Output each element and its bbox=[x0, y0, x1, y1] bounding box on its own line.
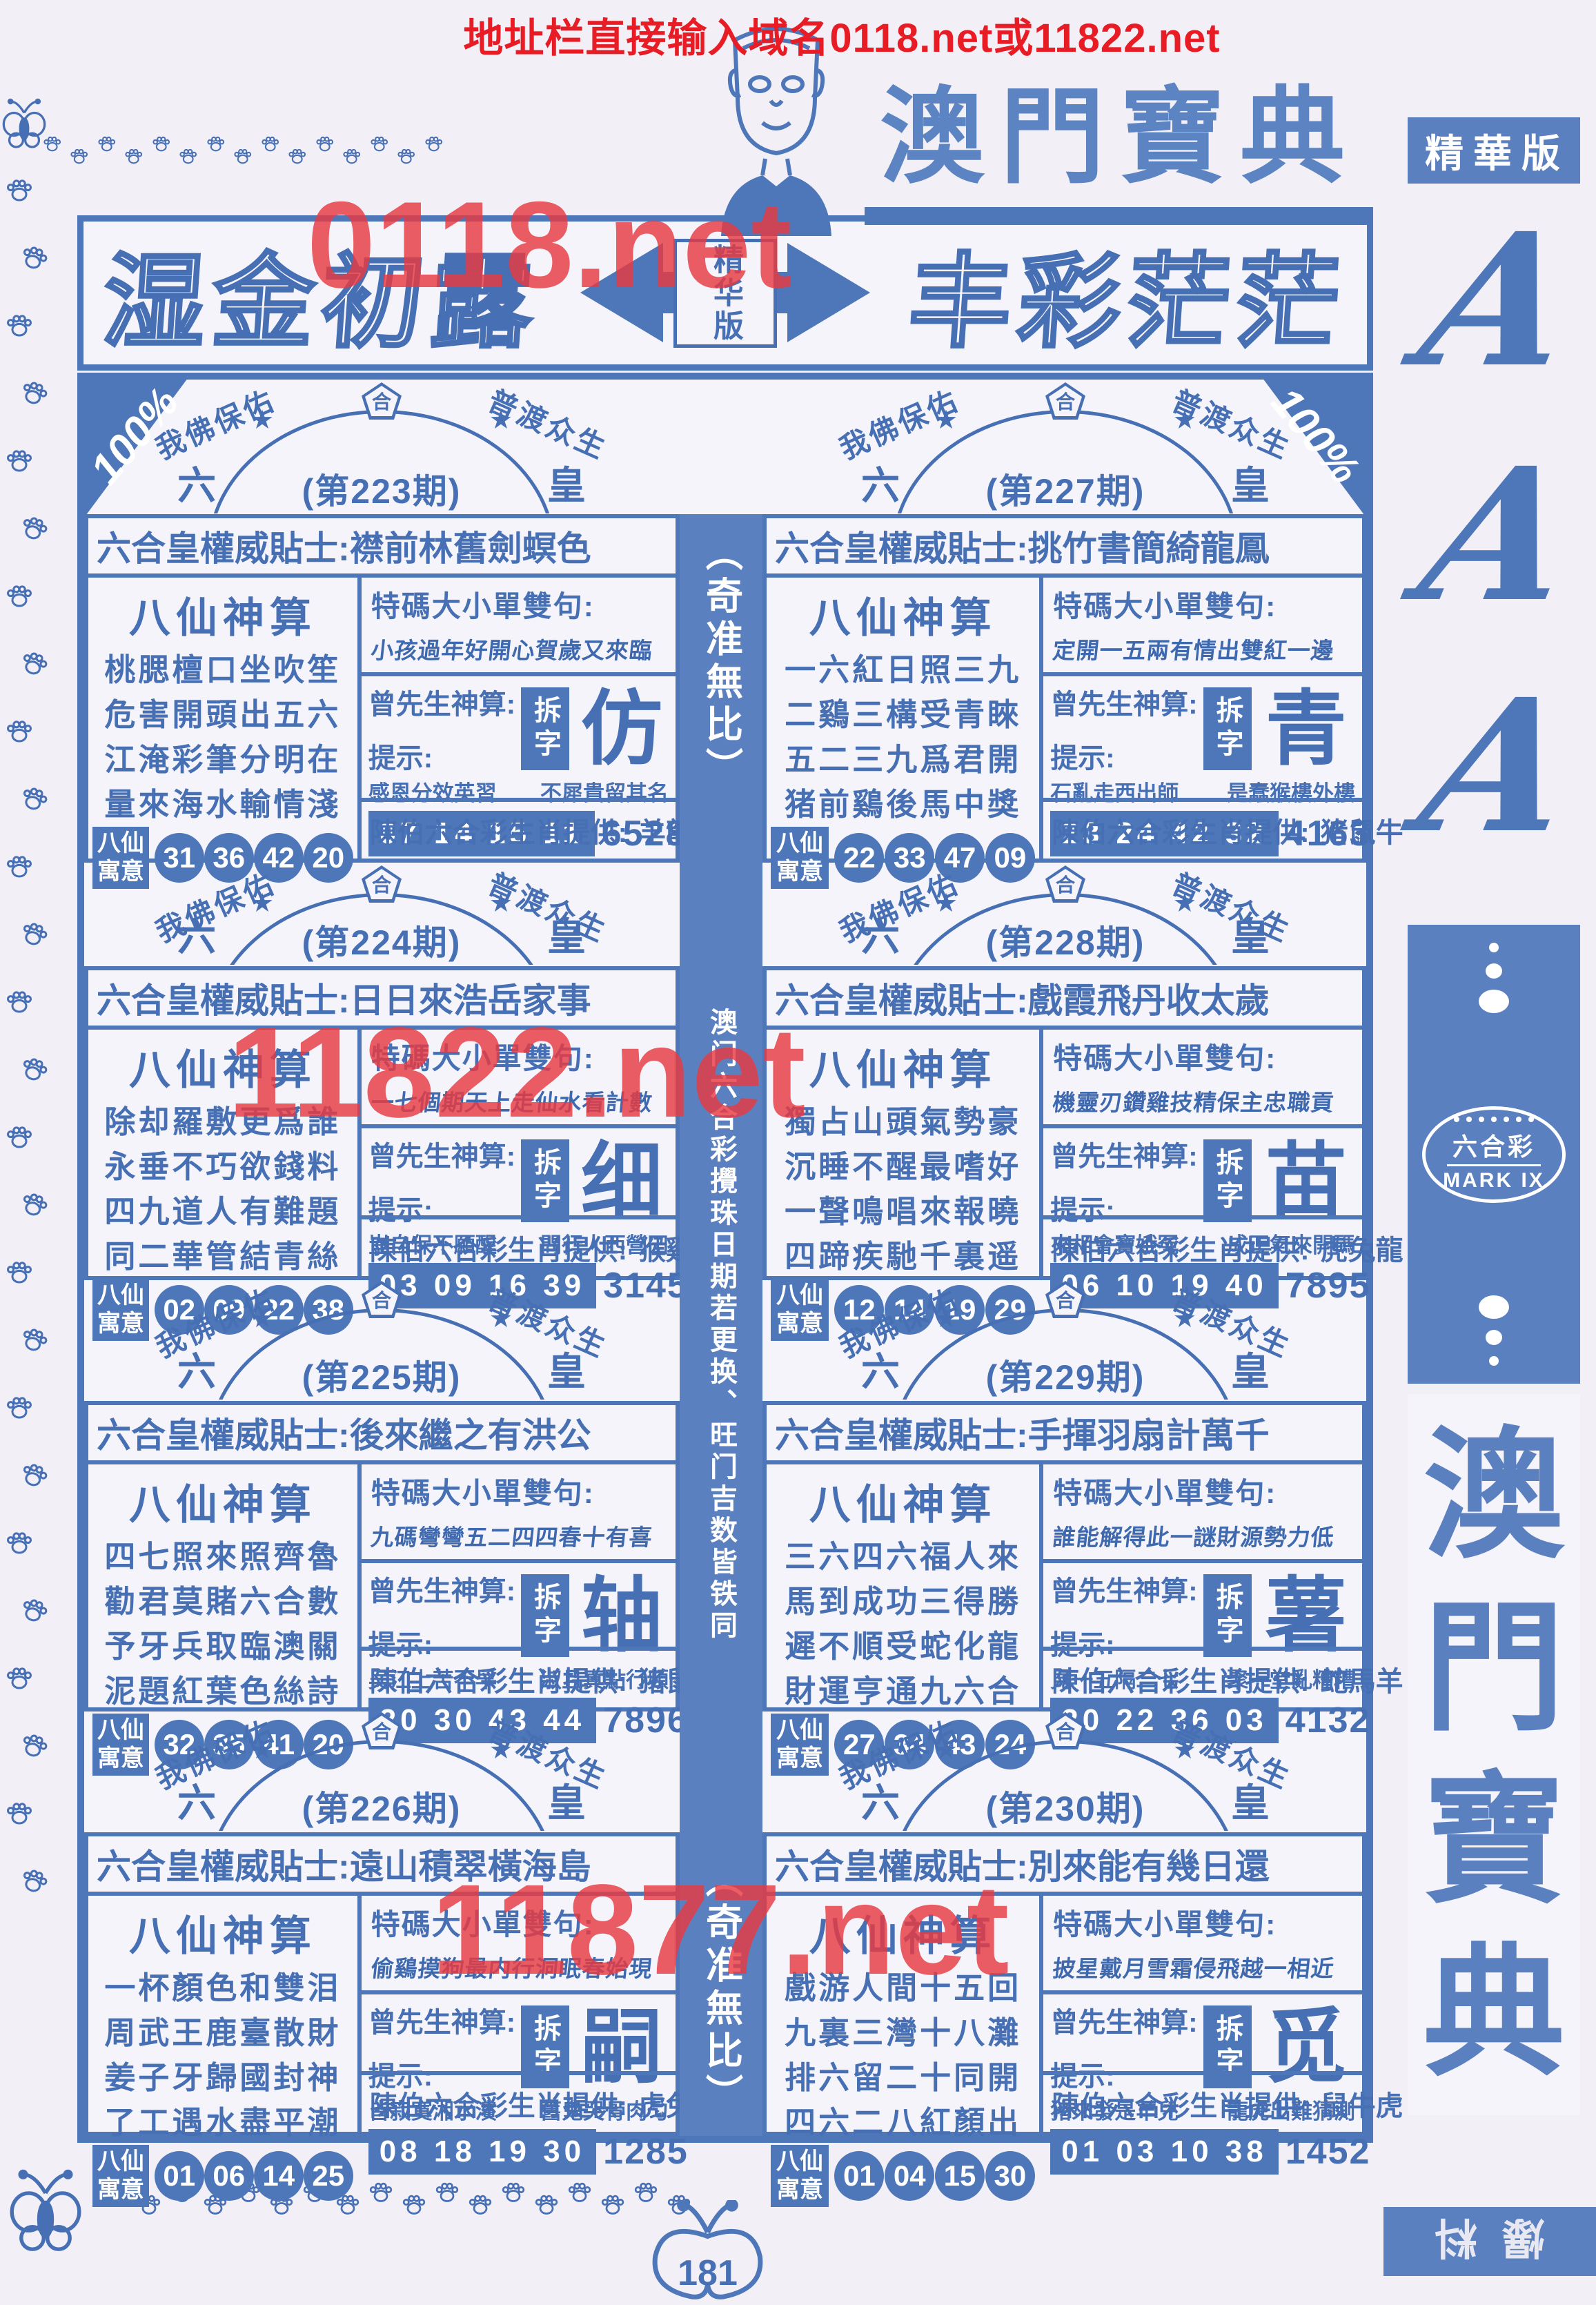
tip-text: 襟前林舊劍螟色 bbox=[350, 521, 591, 571]
poem-line: 一六紅日照三九 bbox=[767, 645, 1039, 689]
address-bar-notice: 地址栏直接输入域名0118.net或11822.net bbox=[442, 6, 1242, 63]
paw-icon bbox=[17, 239, 52, 275]
poem-line: 四蹄疾馳千裏遥 bbox=[767, 1231, 1039, 1276]
panel-body: 八仙神算 除却羅敷更爲誰 永垂不巧欲錢料 四九道人有難題 同二華管結青絲 八仙寓… bbox=[88, 1030, 676, 1276]
master-label: 曾先生神算: bbox=[1050, 1134, 1197, 1174]
authority-tip-row: 六合皇權威貼士: 戲霞飛丹收太歲 bbox=[767, 970, 1362, 1030]
tip-text: 別來能有幾日還 bbox=[1028, 1839, 1270, 1889]
paw-icon bbox=[368, 2179, 393, 2204]
star-icon: ★ bbox=[489, 404, 513, 435]
hint-label: 提示: bbox=[368, 736, 515, 776]
master-label: 曾先生神算: bbox=[368, 2000, 515, 2040]
panel-body: 八仙神算 四七照來照齊魯 勸君莫賭六合數 予牙兵取臨澳關 泥題紅葉色絲詩 八仙寓… bbox=[88, 1464, 676, 1707]
paw-icon bbox=[17, 645, 52, 680]
master-label: 曾先生神算: bbox=[1050, 682, 1197, 722]
paw-icon bbox=[70, 144, 88, 168]
poem-line: 九裏三灣十八灘 bbox=[767, 2008, 1039, 2052]
poem-line: 一杯顏色和雙泪 bbox=[88, 1963, 357, 2008]
authority-tip-row: 六合皇權威貼士: 挑竹書簡綺龍鳳 bbox=[767, 518, 1362, 578]
paw-icon bbox=[6, 1664, 33, 1691]
paw-icon bbox=[17, 1051, 52, 1086]
poem-line: 沉睡不醒最嗜好 bbox=[767, 1141, 1039, 1186]
poem-line: 江淹彩筆分明在 bbox=[88, 734, 357, 779]
number-ball: 14 bbox=[254, 2151, 304, 2201]
poem-line: 姜子牙歸國封神 bbox=[88, 2052, 357, 2097]
issue-number: (第225期) bbox=[147, 1350, 616, 1400]
paw-icon bbox=[6, 1123, 33, 1150]
crown-character: 合 bbox=[362, 1712, 402, 1749]
master-row: 曾先生神算: 提示: 拆字 青 bbox=[1050, 682, 1355, 776]
zodiac-label: 陳伯六合彩生肖提供: bbox=[1052, 2083, 1309, 2123]
issue-arch-header: 我佛保佑 普渡众生 ★ ★ 合 六 皇 (第226期) bbox=[147, 1711, 616, 1831]
paw-icon bbox=[315, 131, 334, 156]
banner-center-arrows: 精华版 bbox=[580, 236, 870, 350]
poem-line: 三六四六福人來 bbox=[767, 1531, 1039, 1576]
paw-icon bbox=[6, 311, 33, 339]
panel-body: 八仙神算 三六四六福人來 馬到成功三得勝 遲不順受蛇化龍 財運亨通九六合 八仙寓… bbox=[767, 1464, 1362, 1707]
oracle-poem: 三六四六福人來 馬到成功三得勝 遲不順受蛇化龍 財運亨通九六合 bbox=[767, 1531, 1039, 1711]
star-icon: ★ bbox=[250, 404, 274, 435]
tip-label: 六合皇權威貼士: bbox=[97, 1839, 350, 1889]
special-code-label: 特碼大小單雙句: bbox=[371, 1901, 669, 1943]
poem-line: 了工遇水盡平潮 bbox=[88, 2097, 357, 2142]
split-word-character: 青 bbox=[1257, 688, 1355, 769]
oracle-column: 八仙神算 三六四六福人來 馬到成功三得勝 遲不順受蛇化龍 財運亨通九六合 八仙寓… bbox=[767, 1464, 1043, 1707]
center-slogan-strip: （奇准無比） 澳门六合彩攪珠日期若更换、旺门吉数皆铁同 （奇准無比） bbox=[680, 514, 762, 2136]
page-number-butterfly: 181 bbox=[647, 2200, 768, 2304]
book-title-char: 典 bbox=[1423, 1943, 1565, 2084]
poem-line: 一聲鳴唱來報曉 bbox=[767, 1186, 1039, 1231]
immortals-meaning-label: 八仙寓意 bbox=[771, 827, 829, 889]
paw-icon bbox=[288, 144, 306, 168]
crown-emblem-icon: 合 bbox=[1045, 1712, 1085, 1749]
oracle-title: 八仙神算 bbox=[767, 1903, 1039, 1963]
paw-icon bbox=[206, 131, 225, 156]
sidebar-footer-band: 爆料 bbox=[1383, 2207, 1596, 2276]
tip-text: 後來繼之有洪公 bbox=[350, 1408, 591, 1458]
paw-icon bbox=[370, 131, 388, 156]
star-icon: ★ bbox=[1173, 404, 1196, 435]
immortals-meaning-row: 八仙寓意 01 06 14 25 bbox=[88, 2142, 357, 2211]
tip-label: 六合皇權威貼士: bbox=[775, 521, 1028, 571]
oracle-title: 八仙神算 bbox=[88, 1903, 357, 1963]
issue-panel-224: 六合皇權威貼士: 日日來浩岳家事 八仙神算 除却羅敷更爲誰 永垂不巧欲錢料 四九… bbox=[84, 966, 680, 1280]
oracle-poem: 一杯顏色和雙泪 周武王鹿臺散財 姜子牙歸國封神 了工遇水盡平潮 bbox=[88, 1963, 357, 2142]
special-code-box: 特碼大小單雙句: 九碼彎彎五二四四春十有喜 bbox=[362, 1464, 676, 1563]
paw-border-top bbox=[43, 131, 443, 156]
zodiac-row: 陳伯六合彩生肖提供: 猪鼠牛 bbox=[362, 1647, 676, 1707]
tip-label: 六合皇權威貼士: bbox=[775, 1408, 1028, 1458]
dots-ellipsis-icon bbox=[1479, 943, 1509, 1013]
paw-icon bbox=[17, 1322, 52, 1357]
crown-character: 合 bbox=[362, 382, 402, 420]
lucky-number-balls: 01 06 14 25 bbox=[155, 2151, 353, 2201]
master-box: 曾先生神算: 提示: 拆字 觅 猪來發是羊兒 龍虎出難猜測 01 03 10 3… bbox=[1043, 1994, 1362, 2071]
paw-icon bbox=[435, 2179, 460, 2204]
special-code-box: 特碼大小單雙句: 誰能解得此一謎財源勢力低 bbox=[1043, 1464, 1362, 1563]
master-box: 曾先生神算: 提示: 拆字 薯 見一五隔二七 聚一堂亂糟糟 20 22 36 0… bbox=[1043, 1563, 1362, 1647]
master-label: 曾先生神算: bbox=[1050, 1569, 1197, 1609]
immortals-meaning-label: 八仙寓意 bbox=[92, 1714, 149, 1776]
macau-treasure-book-page: 地址栏直接输入域名0118.net或11822.net 澳門寶典 bbox=[0, 0, 1596, 2305]
strip-top-text: （奇准無比） bbox=[694, 533, 749, 790]
poem-line: 二鷄三構受青睞 bbox=[767, 689, 1039, 734]
butterfly-icon bbox=[4, 2167, 87, 2257]
oracle-title: 八仙神算 bbox=[767, 1471, 1039, 1531]
star-icon: ★ bbox=[489, 1734, 513, 1765]
zodiac-label: 陳伯六合彩生肖提供: bbox=[370, 1228, 627, 1268]
master-box: 曾先生神算: 提示: 拆字 嗣 皆寂寞湘水濱 舊鬼哭骨肉匀 08 18 19 3… bbox=[362, 1994, 676, 2071]
poem-line: 周武王鹿臺散財 bbox=[88, 2008, 357, 2052]
paw-icon bbox=[6, 447, 33, 474]
authority-tip-row: 六合皇權威貼士: 手揮羽扇計萬千 bbox=[767, 1405, 1362, 1464]
oracle-poem: 戲游人間十五回 九裏三灣十八灘 排六留二十同開 四六二八紅顏出 bbox=[767, 1963, 1039, 2142]
right-arrow-icon bbox=[787, 243, 870, 342]
authority-tip-row: 六合皇權威貼士: 後來繼之有洪公 bbox=[88, 1405, 676, 1464]
issue-arch-header: 我佛保佑 普渡众生 ★ ★ 合 六 皇 (第229期) bbox=[831, 1279, 1300, 1400]
crown-emblem-icon: 合 bbox=[1045, 1281, 1085, 1318]
star-icon: ★ bbox=[489, 887, 513, 919]
logo-chinese-text: 六合彩 bbox=[1447, 1127, 1541, 1166]
tip-label: 六合皇權威貼士: bbox=[97, 973, 350, 1023]
master-box: 曾先生神算: 提示: 拆字 仿 感恩分效英習 不犀貴留其名 07 14 15 1… bbox=[362, 676, 676, 798]
paw-icon bbox=[501, 2179, 526, 2204]
paw-icon bbox=[124, 144, 143, 168]
star-icon: ★ bbox=[1173, 1734, 1196, 1765]
oracle-title: 八仙神算 bbox=[88, 1037, 357, 1097]
numbers-row: 08 18 19 30 1285 bbox=[368, 2129, 669, 2175]
banner-left-slogan: 湿金初露 bbox=[99, 219, 545, 367]
oracle-column: 八仙神算 一杯顏色和雙泪 周武王鹿臺散財 姜子牙歸國封神 了工遇水盡平潮 八仙寓… bbox=[88, 1896, 362, 2132]
lucky-number-balls: 01 04 15 30 bbox=[834, 2151, 1035, 2201]
special-code-box: 特碼大小單雙句: 小孩過年好開心賀歲又來臨 bbox=[362, 578, 676, 676]
special-code-box: 特碼大小單雙句: 定開一五兩有情出雙紅一邊 bbox=[1043, 578, 1362, 676]
poem-line: 四六二八紅顏出 bbox=[767, 2097, 1039, 2142]
zodiac-row: 陳伯六合彩生肖提供: 鼠牛虎 bbox=[1043, 2071, 1362, 2132]
crown-character: 合 bbox=[1045, 382, 1085, 420]
paw-icon bbox=[17, 781, 52, 816]
special-code-label: 特碼大小單雙句: bbox=[371, 1470, 669, 1512]
issue-number: (第227期) bbox=[831, 464, 1300, 513]
crown-character: 合 bbox=[1045, 1281, 1085, 1318]
poem-line: 遲不順受蛇化龍 bbox=[767, 1621, 1039, 1666]
master-label: 曾先生神算: bbox=[1050, 2000, 1197, 2040]
tip-text: 挑竹書簡綺龍鳳 bbox=[1028, 521, 1270, 571]
authority-tip-row: 六合皇權威貼士: 遠山積翠橫海島 bbox=[88, 1836, 676, 1896]
paw-icon bbox=[17, 1592, 52, 1627]
master-labels: 曾先生神算: 提示: bbox=[368, 682, 515, 776]
butterfly-icon bbox=[1, 97, 47, 152]
prediction-column: 特碼大小單雙句: 機靈刃鑽雞技精保主忠職貢 曾先生神算: 提示: 拆字 苗 來相… bbox=[1043, 1030, 1362, 1276]
special-code-phrase: 九碼彎彎五二四四春十有喜 bbox=[369, 1519, 670, 1552]
zodiac-row: 陳伯六合彩生肖提供: 虎兔龍 bbox=[1043, 1215, 1362, 1276]
tip-label: 六合皇權威貼士: bbox=[775, 1839, 1028, 1889]
dots-ellipsis-icon bbox=[1479, 1295, 1509, 1366]
oracle-column: 八仙神算 除却羅敷更爲誰 永垂不巧欲錢料 四九道人有難題 同二華管結青絲 八仙寓… bbox=[88, 1030, 362, 1276]
immortals-meaning-label: 八仙寓意 bbox=[771, 2145, 829, 2207]
issue-panel-230: 六合皇權威貼士: 別來能有幾日還 八仙神算 戲游人間十五回 九裏三灣十八灘 排六… bbox=[762, 1832, 1366, 2136]
numbers-row: 01 03 10 38 1452 bbox=[1050, 2129, 1355, 2175]
poem-line: 獨占山頭氣勢豪 bbox=[767, 1097, 1039, 1141]
sidebar-footer-text: 爆料 bbox=[1410, 2210, 1570, 2273]
paw-icon bbox=[468, 2192, 493, 2217]
logo-english-text: MARK IX bbox=[1443, 1169, 1545, 1193]
crown-emblem-icon: 合 bbox=[362, 1712, 402, 1749]
sidebar-letter-a: A bbox=[1375, 200, 1596, 428]
paw-icon bbox=[17, 510, 52, 545]
crown-emblem-icon: 合 bbox=[362, 382, 402, 420]
split-word-character: 薯 bbox=[1257, 1575, 1355, 1656]
paw-icon bbox=[17, 1727, 52, 1763]
oracle-poem: 四七照來照齊魯 勸君莫賭六合數 予牙兵取臨澳關 泥題紅葉色絲詩 bbox=[88, 1531, 357, 1711]
master-labels: 曾先生神算: 提示: bbox=[368, 1134, 515, 1228]
issue-panel-227: 六合皇權威貼士: 挑竹書簡綺龍鳳 八仙神算 一六紅日照三九 二鷄三構受青睞 五二… bbox=[762, 514, 1366, 863]
number-ball: 25 bbox=[304, 2151, 353, 2201]
special-code-box: 特碼大小單雙句: 披星戴月雪霜侵飛越一相近 bbox=[1043, 1896, 1362, 1994]
split-word-label: 拆字 bbox=[1203, 1139, 1252, 1222]
oracle-column: 八仙神算 四七照來照齊魯 勸君莫賭六合數 予牙兵取臨澳關 泥題紅葉色絲詩 八仙寓… bbox=[88, 1464, 362, 1707]
star-icon: ★ bbox=[1173, 887, 1196, 919]
zodiac-animals: 虎兔龍 bbox=[1321, 1228, 1403, 1268]
crown-character: 合 bbox=[362, 1281, 402, 1318]
tip-label: 六合皇權威貼士: bbox=[97, 1408, 350, 1458]
immortals-meaning-label: 八仙寓意 bbox=[92, 2145, 149, 2207]
issue-panel-226: 六合皇權威貼士: 遠山積翠橫海島 八仙神算 一杯顏色和雙泪 周武王鹿臺散財 姜子… bbox=[84, 1832, 680, 2136]
book-title-char: 澳 bbox=[1423, 1425, 1565, 1567]
star-icon: ★ bbox=[250, 887, 274, 919]
panel-body: 八仙神算 獨占山頭氣勢豪 沉睡不醒最嗜好 一聲鳴唱來報曉 四蹄疾馳千裏遥 八仙寓… bbox=[767, 1030, 1362, 1276]
zodiac-row: 陳伯六合彩生肖提供: 羊龍蛇 bbox=[362, 798, 676, 859]
number-ball: 30 bbox=[985, 2151, 1035, 2201]
tip-label: 六合皇權威貼士: bbox=[97, 521, 350, 571]
book-title-char: 門 bbox=[1423, 1598, 1565, 1739]
number-ball: 06 bbox=[204, 2151, 254, 2201]
number-ball: 01 bbox=[834, 2151, 884, 2201]
poem-line: 同二華管結青絲 bbox=[88, 1231, 357, 1276]
issue-arch-header: 我佛保佑 普渡众生 ★ ★ 合 六 皇 (第224期) bbox=[147, 864, 616, 965]
star-icon: ★ bbox=[1173, 1303, 1196, 1334]
poem-line: 除却羅敷更爲誰 bbox=[88, 1097, 357, 1141]
paw-icon bbox=[6, 1529, 33, 1556]
title-underline-bar bbox=[865, 207, 1373, 225]
panel-body: 八仙神算 桃腮檀口坐吹笙 危害開頭出五六 江淹彩筆分明在 量來海水輸情淺 八仙寓… bbox=[88, 578, 676, 859]
issue-arch-header: 我佛保佑 普渡众生 ★ ★ 合 六 皇 (第223期) bbox=[147, 381, 616, 513]
poem-line: 危害開頭出五六 bbox=[88, 689, 357, 734]
master-label: 曾先生神算: bbox=[368, 682, 515, 722]
paw-icon bbox=[17, 1457, 52, 1492]
oracle-poem: 桃腮檀口坐吹笙 危害開頭出五六 江淹彩筆分明在 量來海水輸情淺 bbox=[88, 645, 357, 824]
authority-tip-row: 六合皇權威貼士: 日日來浩岳家事 bbox=[88, 970, 676, 1030]
issue-arch-header: 我佛保佑 普渡众生 ★ ★ 合 六 皇 (第230期) bbox=[831, 1711, 1300, 1831]
tip-text: 手揮羽扇計萬千 bbox=[1028, 1408, 1270, 1458]
star-icon: ★ bbox=[934, 1734, 958, 1765]
star-icon: ★ bbox=[250, 1734, 274, 1765]
poem-line: 排六留二十同開 bbox=[767, 2052, 1039, 2097]
paw-icon bbox=[17, 1863, 52, 1898]
lucky-numbers-strip: 08 18 19 30 bbox=[368, 2129, 596, 2175]
poem-line: 五二三九爲君開 bbox=[767, 734, 1039, 779]
paw-icon bbox=[152, 131, 170, 156]
prediction-column: 特碼大小單雙句: 一七個期天上走仙水看計數 曾先生神算: 提示: 拆字 细 豈自… bbox=[362, 1030, 676, 1276]
issue-number: (第230期) bbox=[831, 1781, 1300, 1831]
four-digit-code: 1452 bbox=[1285, 2131, 1371, 2172]
paw-icon bbox=[534, 2192, 559, 2217]
split-word-label: 拆字 bbox=[521, 1139, 569, 1222]
poem-line: 猪前鷄後馬中獎 bbox=[767, 779, 1039, 824]
zodiac-label: 陳伯六合彩生肖提供: bbox=[370, 810, 627, 850]
crown-character: 合 bbox=[1045, 865, 1085, 903]
paw-icon bbox=[6, 1393, 33, 1421]
oracle-title: 八仙神算 bbox=[88, 585, 357, 645]
number-ball: 15 bbox=[935, 2151, 985, 2201]
poem-line: 泥題紅葉色絲詩 bbox=[88, 1666, 357, 1711]
prediction-column: 特碼大小單雙句: 披星戴月雪霜侵飛越一相近 曾先生神算: 提示: 拆字 觅 猪來… bbox=[1043, 1896, 1362, 2132]
special-code-label: 特碼大小單雙句: bbox=[1053, 1035, 1355, 1077]
paw-icon bbox=[43, 131, 61, 156]
oracle-column: 八仙神算 一六紅日照三九 二鷄三構受青睞 五二三九爲君開 猪前鷄後馬中獎 八仙寓… bbox=[767, 578, 1043, 859]
oracle-title: 八仙神算 bbox=[767, 1037, 1039, 1097]
special-code-label: 特碼大小單雙句: bbox=[1053, 1901, 1355, 1943]
zodiac-animals: 鼠牛虎 bbox=[1321, 2083, 1403, 2123]
star-icon: ★ bbox=[489, 1303, 513, 1334]
paw-icon bbox=[402, 2192, 426, 2217]
crown-character: 合 bbox=[362, 865, 402, 903]
prediction-column: 特碼大小單雙句: 偷鷄摸狗最内行洞眠春始現 曾先生神算: 提示: 拆字 嗣 皆寂… bbox=[362, 1896, 676, 2132]
tip-label: 六合皇權威貼士: bbox=[775, 973, 1028, 1023]
paw-border-left bbox=[6, 176, 33, 1894]
special-code-box: 特碼大小單雙句: 偷鷄摸狗最内行洞眠春始現 bbox=[362, 1896, 676, 1994]
star-icon: ★ bbox=[934, 404, 958, 435]
immortals-meaning-row: 八仙寓意 01 04 15 30 bbox=[767, 2142, 1039, 2211]
tip-text: 遠山積翠橫海島 bbox=[350, 1839, 591, 1889]
special-code-phrase: 機靈刃鑽雞技精保主忠職貢 bbox=[1052, 1084, 1357, 1117]
mark-six-logo: 六合彩 MARK IX bbox=[1422, 1106, 1566, 1203]
paw-icon bbox=[233, 144, 252, 168]
oracle-title: 八仙神算 bbox=[767, 585, 1039, 645]
special-code-box: 特碼大小單雙句: 機靈刃鑽雞技精保主忠職貢 bbox=[1043, 1030, 1362, 1128]
paw-icon bbox=[397, 144, 415, 168]
sidebar-letter-a: A bbox=[1375, 666, 1596, 894]
prediction-column: 特碼大小單雙句: 小孩過年好開心賀歲又來臨 曾先生神算: 提示: 拆字 仿 感恩… bbox=[362, 578, 676, 859]
book-title-char: 寶 bbox=[1423, 1770, 1565, 1912]
sidebar-book-title: 澳 門 寶 典 bbox=[1408, 1394, 1580, 2115]
number-ball: 04 bbox=[885, 2151, 934, 2201]
master-label: 曾先生神算: bbox=[368, 1569, 515, 1609]
banner-right-slogan: 丰彩茫茫 bbox=[905, 219, 1351, 367]
four-digit-code: 1285 bbox=[603, 2131, 689, 2172]
oracle-poem: 一六紅日照三九 二鷄三構受青睞 五二三九爲君開 猪前鷄後馬中獎 bbox=[767, 645, 1039, 824]
issue-number: (第228期) bbox=[831, 915, 1300, 965]
special-code-phrase: 誰能解得此一謎財源勢力低 bbox=[1052, 1519, 1357, 1552]
poem-line: 永垂不巧欲錢料 bbox=[88, 1141, 357, 1186]
paw-icon bbox=[17, 375, 52, 410]
master-row: 曾先生神算: 提示: 拆字 苗 bbox=[1050, 1134, 1355, 1228]
paw-icon bbox=[567, 2179, 592, 2204]
authority-tip-row: 六合皇權威貼士: 別來能有幾日還 bbox=[767, 1836, 1362, 1896]
split-word-label: 拆字 bbox=[521, 1574, 569, 1657]
issue-number: (第223期) bbox=[147, 464, 616, 513]
zodiac-row: 陳伯六合彩生肖提供: 猪鼠牛 bbox=[1043, 798, 1362, 859]
master-box: 曾先生神算: 提示: 拆字 青 石亂走西出師 是蠢猴樓外樓 23 24 42 3… bbox=[1043, 676, 1362, 798]
oracle-column: 八仙神算 桃腮檀口坐吹笙 危害開頭出五六 江淹彩筆分明在 量來海水輸情淺 八仙寓… bbox=[88, 578, 362, 859]
poem-line: 戲游人間十五回 bbox=[767, 1963, 1039, 2008]
paw-icon bbox=[6, 988, 33, 1015]
issue-number: (第224期) bbox=[147, 915, 616, 965]
zodiac-animals: 蛇馬羊 bbox=[1321, 1659, 1403, 1699]
issue-arch-header: 我佛保佑 普渡众生 ★ ★ 合 六 皇 (第227期) bbox=[831, 381, 1300, 513]
authority-tip-row: 六合皇權威貼士: 襟前林舊劍螟色 bbox=[88, 518, 676, 578]
split-word-character: 轴 bbox=[575, 1575, 669, 1656]
issue-arch-header: 我佛保佑 普渡众生 ★ ★ 合 六 皇 (第228期) bbox=[831, 864, 1300, 965]
split-word-label: 拆字 bbox=[521, 687, 569, 770]
special-code-phrase: 偷鷄摸狗最内行洞眠春始現 bbox=[369, 1950, 670, 1983]
oracle-column: 八仙神算 獨占山頭氣勢豪 沉睡不醒最嗜好 一聲鳴唱來報曉 四蹄疾馳千裏遥 八仙寓… bbox=[767, 1030, 1043, 1276]
oracle-poem: 除却羅敷更爲誰 永垂不巧欲錢料 四九道人有難題 同二華管結青絲 bbox=[88, 1097, 357, 1276]
paw-icon bbox=[6, 852, 33, 880]
crown-emblem-icon: 合 bbox=[1045, 382, 1085, 420]
paw-icon bbox=[6, 1799, 33, 1827]
immortals-meaning-label: 八仙寓意 bbox=[92, 827, 149, 889]
number-ball: 01 bbox=[155, 2151, 204, 2201]
zodiac-label: 陳伯六合彩生肖提供: bbox=[370, 1659, 627, 1699]
poem-line: 予牙兵取臨澳關 bbox=[88, 1621, 357, 1666]
panel-body: 八仙神算 一六紅日照三九 二鷄三構受青睞 五二三九爲君開 猪前鷄後馬中獎 八仙寓… bbox=[767, 578, 1362, 859]
tip-text: 日日來浩岳家事 bbox=[350, 973, 591, 1023]
edition-badge-text: 精华版 bbox=[703, 244, 747, 343]
zodiac-row: 陳伯六合彩生肖提供: 虎兔龍 bbox=[362, 2071, 676, 2132]
zodiac-label: 陳伯六合彩生肖提供: bbox=[370, 2083, 627, 2123]
poem-line: 量來海水輸情淺 bbox=[88, 779, 357, 824]
sidebar-edition-label: 精華版 bbox=[1408, 117, 1580, 184]
special-code-phrase: 一七個期天上走仙水看計數 bbox=[369, 1084, 670, 1117]
oracle-column: 八仙神算 戲游人間十五回 九裏三灣十八灘 排六留二十同開 四六二八紅顏出 八仙寓… bbox=[767, 1896, 1043, 2132]
strip-middle-text: 澳门六合彩攪珠日期若更换、旺门吉数皆铁同 bbox=[701, 1008, 741, 1642]
special-code-label: 特碼大小單雙句: bbox=[371, 583, 669, 625]
split-word-label: 拆字 bbox=[1203, 1574, 1252, 1657]
master-labels: 曾先生神算: 提示: bbox=[1050, 1134, 1197, 1228]
dotted-arc-icon bbox=[1426, 1117, 1562, 1122]
paw-icon bbox=[600, 2192, 625, 2217]
sidebar-logo-box: 六合彩 MARK IX bbox=[1408, 925, 1580, 1384]
zodiac-row: 陳伯六合彩生肖提供: 猴鷄狗 bbox=[362, 1215, 676, 1276]
paw-icon bbox=[6, 1258, 33, 1286]
paw-icon bbox=[6, 176, 33, 204]
paw-icon bbox=[342, 144, 361, 168]
crown-character: 合 bbox=[1045, 1712, 1085, 1749]
edition-badge: 精华版 bbox=[673, 239, 777, 348]
prediction-column: 特碼大小單雙句: 定開一五兩有情出雙紅一邊 曾先生神算: 提示: 拆字 青 石亂… bbox=[1043, 578, 1362, 859]
special-code-phrase: 定開一五兩有情出雙紅一邊 bbox=[1052, 632, 1357, 665]
poem-line: 馬到成功三得勝 bbox=[767, 1576, 1039, 1621]
sidebar-letter-a: A bbox=[1375, 435, 1596, 663]
paw-icon bbox=[179, 144, 197, 168]
zodiac-label: 陳伯六合彩生肖提供: bbox=[1052, 810, 1309, 850]
issue-panel-229: 六合皇權威貼士: 手揮羽扇計萬千 八仙神算 三六四六福人來 馬到成功三得勝 遲不… bbox=[762, 1401, 1366, 1711]
immortals-meaning-label: 八仙寓意 bbox=[92, 1279, 149, 1341]
paw-icon bbox=[6, 582, 33, 609]
paw-icon bbox=[97, 131, 116, 156]
crown-emblem-icon: 合 bbox=[1045, 865, 1085, 903]
page-title: 澳門寶典 bbox=[880, 52, 1363, 197]
poem-line: 四七照來照齊魯 bbox=[88, 1531, 357, 1576]
split-word-label: 拆字 bbox=[1203, 687, 1252, 770]
panel-body: 八仙神算 戲游人間十五回 九裏三灣十八灘 排六留二十同開 四六二八紅顏出 八仙寓… bbox=[767, 1896, 1362, 2132]
star-icon: ★ bbox=[934, 1303, 958, 1334]
poem-line: 財運亨通九六合 bbox=[767, 1666, 1039, 1711]
split-word-character: 仿 bbox=[575, 688, 669, 769]
paw-icon bbox=[17, 916, 52, 951]
panel-body: 八仙神算 一杯顏色和雙泪 周武王鹿臺散財 姜子牙歸國封神 了工遇水盡平潮 八仙寓… bbox=[88, 1896, 676, 2132]
